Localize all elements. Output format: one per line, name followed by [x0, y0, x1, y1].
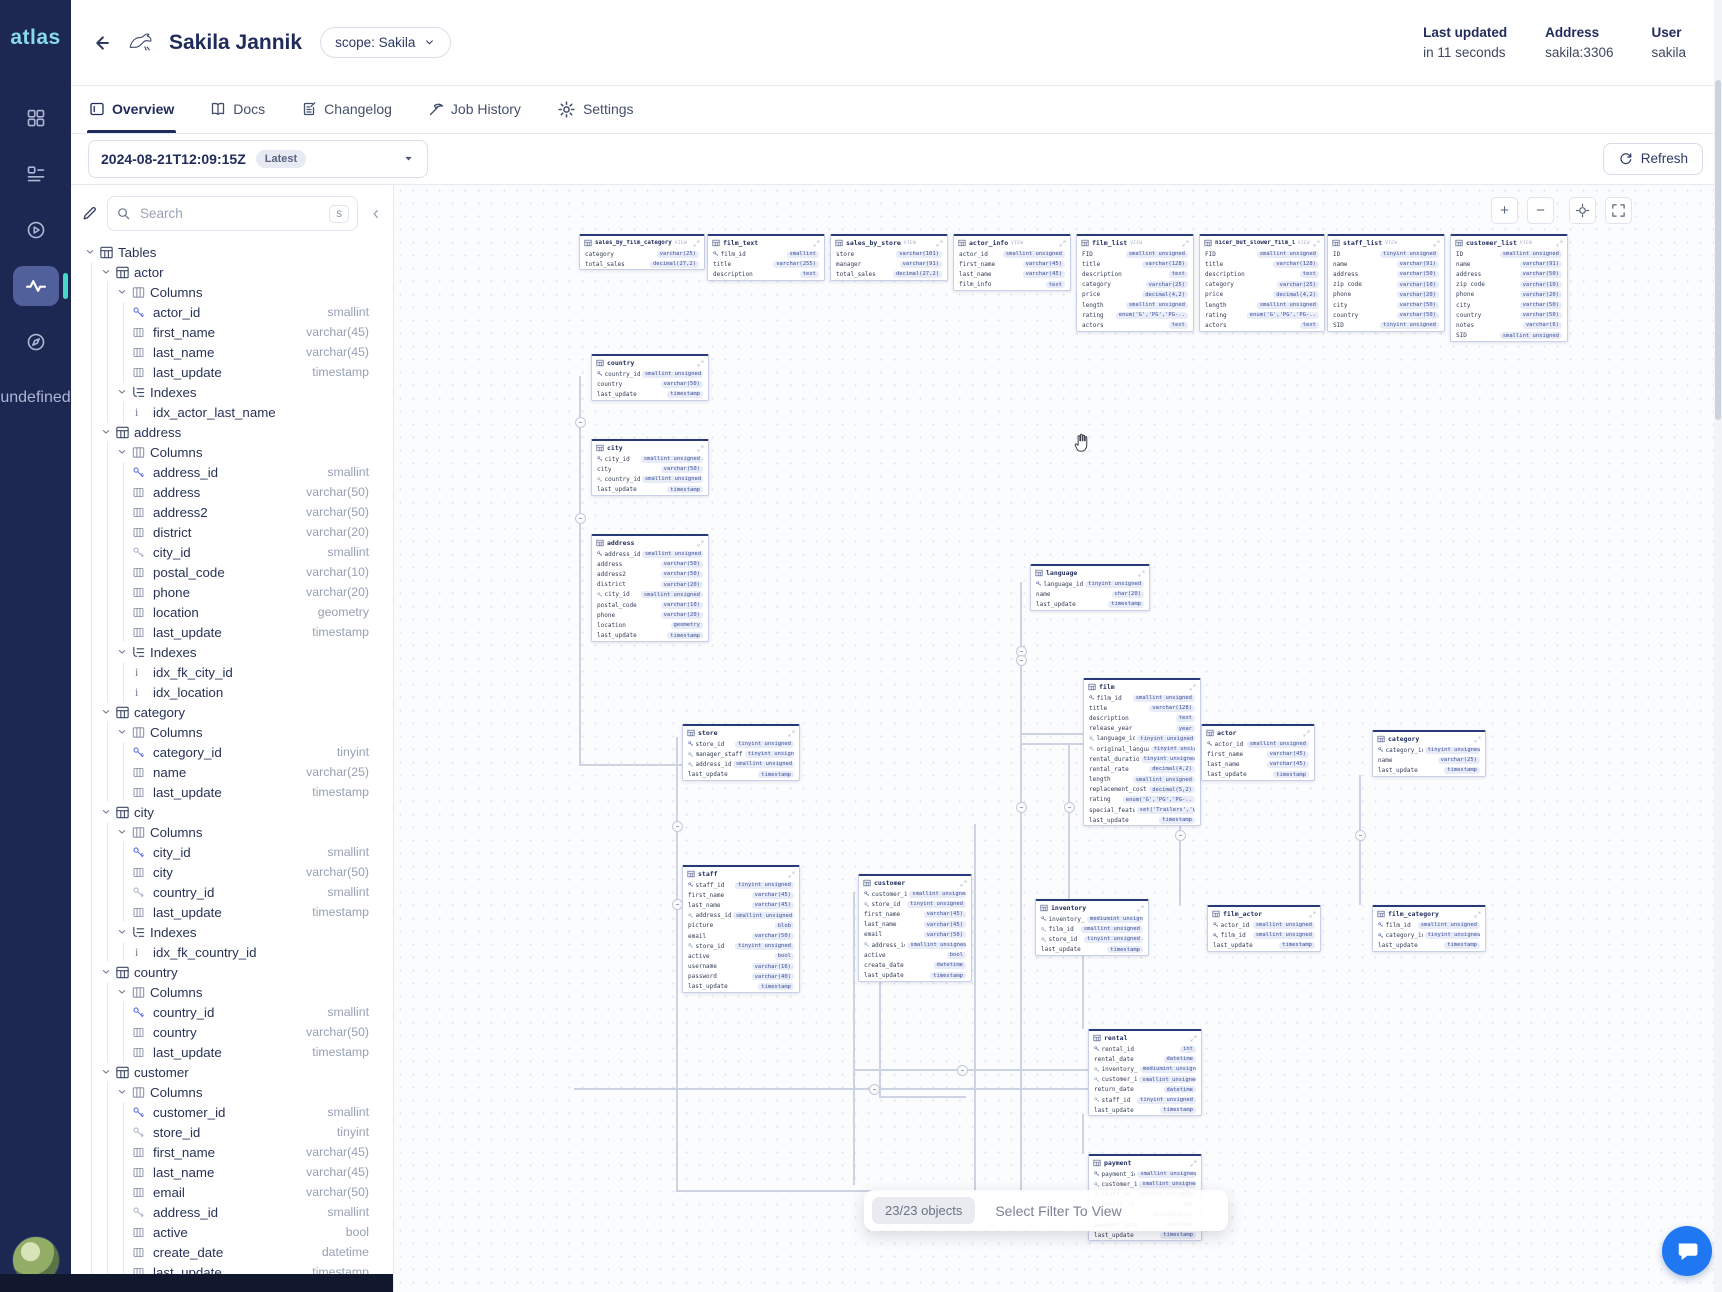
column-type-pill: text	[1300, 271, 1319, 278]
tree-row-Columns[interactable]: Columns	[71, 442, 393, 462]
tree-row-address_id[interactable]: address_idsmallint	[71, 462, 393, 482]
columns-icon	[131, 1085, 146, 1100]
active-accent-bar	[63, 273, 68, 299]
foreign-key-icon	[1094, 1097, 1100, 1103]
tree-row-city[interactable]: city	[71, 802, 393, 822]
stat-last-updated: Last updated in 11 seconds	[1423, 25, 1507, 60]
table-icon	[1040, 904, 1048, 912]
search-input[interactable]	[138, 205, 322, 222]
table-icon	[687, 870, 695, 878]
column-type-pill: text	[1169, 322, 1188, 329]
table-icon	[1212, 910, 1220, 918]
column-type-pill: smallint unsigned	[907, 942, 966, 949]
tree-row-Columns[interactable]: Columns	[71, 982, 393, 1002]
tree-row-first_name[interactable]: first_namevarchar(45)	[71, 1142, 393, 1162]
diagram-table-film_list[interactable]: film_listVIEWFIDsmallint unsignedtitleva…	[1076, 234, 1194, 332]
column-row: phonevarchar(20)	[592, 610, 708, 620]
expand-icon[interactable]	[697, 360, 704, 367]
page-scrollbar[interactable]	[1714, 0, 1722, 1292]
column-icon	[132, 506, 145, 519]
column-type-pill: smallint unsigned	[1247, 741, 1309, 748]
tab-overview[interactable]: Overview	[89, 85, 174, 133]
column-type-pill: varchar(128)	[1142, 261, 1188, 268]
tree-row-actor[interactable]: actor	[71, 262, 393, 282]
primary-key-icon	[1213, 933, 1219, 939]
collapse-node[interactable]	[575, 417, 586, 428]
tab-bar: OverviewDocsChangelogJob HistorySettings	[71, 85, 1722, 134]
diagram-table-category[interactable]: categorycategory_idtinyint unsignednamev…	[1372, 730, 1486, 777]
column-row: descriptiontext	[1084, 713, 1200, 723]
expand-icon[interactable]	[1189, 684, 1196, 691]
tree-row-Tables[interactable]: Tables	[71, 242, 393, 262]
column-row: last_namevarchar(45)	[859, 920, 971, 930]
column-row: actorstext	[1200, 320, 1324, 330]
column-type-pill: varchar(50)	[924, 931, 966, 938]
expand-icon[interactable]	[697, 540, 704, 547]
chevron-down-icon[interactable]	[100, 266, 112, 278]
diagram-table-city[interactable]: citycity_idsmallint unsignedcityvarchar(…	[591, 439, 709, 496]
nav-item-runs-icon[interactable]	[13, 210, 59, 250]
column-row: original_language_idtinyint unsigned	[1084, 744, 1200, 754]
column-row: FIDsmallint unsigned	[1200, 249, 1324, 259]
diagram-table-nicer_but_slower_film_list[interactable]: nicer_but_slower_film_listVIEWFIDsmallin…	[1199, 234, 1325, 332]
column-type-pill: bool	[947, 952, 966, 959]
tree-row-city_id[interactable]: city_idsmallint	[71, 542, 393, 562]
relation-line	[1082, 1114, 1084, 1154]
chat-icon	[1675, 1239, 1699, 1263]
diagram-table-staff[interactable]: staffstaff_idtinyint unsignedfirst_namev…	[682, 865, 800, 993]
column-row: IDsmallint unsigned	[1451, 249, 1567, 259]
column-type-pill: tinyint unsigned	[1380, 322, 1439, 329]
column-row: special_featuresset('Trailers','Co..	[1084, 805, 1200, 815]
nav-item-explore-icon[interactable]	[13, 322, 59, 362]
tree-row-country[interactable]: countryvarchar(50)	[71, 1022, 393, 1042]
column-type-pill: text	[1169, 271, 1188, 278]
expand-icon[interactable]	[1138, 570, 1145, 577]
table-icon	[115, 1065, 130, 1080]
stat-user: User sakila	[1651, 25, 1686, 60]
column-row: inventory_idmediumint unsigned	[1036, 914, 1148, 924]
indexes-icon	[131, 385, 146, 400]
tree-row-phone[interactable]: phonevarchar(20)	[71, 582, 393, 602]
column-row: last_updatetimestamp	[1208, 940, 1320, 950]
tree-row-last_name[interactable]: last_namevarchar(45)	[71, 342, 393, 362]
view-tag: VIEW	[1011, 241, 1023, 246]
column-row: SIDsmallint unsigned	[1451, 331, 1567, 341]
collapse-node[interactable]	[575, 513, 586, 524]
column-row: address_idsmallint unsigned	[859, 940, 971, 950]
key-icon	[132, 466, 145, 479]
expand-icon[interactable]	[788, 871, 795, 878]
column-type: varchar(45)	[306, 345, 369, 359]
column-row: last_updatetimestamp	[592, 485, 708, 495]
index-icon: i	[135, 945, 138, 960]
chevron-down-icon[interactable]	[116, 826, 128, 838]
expand-icon[interactable]	[693, 240, 700, 247]
diagram-table-store[interactable]: storestore_idtinyint unsignedmanager_sta…	[682, 724, 800, 781]
tab-docs[interactable]: Docs	[210, 85, 265, 133]
gear-icon	[557, 100, 576, 119]
column-type-pill: blob	[775, 922, 794, 929]
tree-row-Columns[interactable]: Columns	[71, 282, 393, 302]
table-icon	[712, 239, 720, 247]
diagram-table-inventory[interactable]: inventoryinventory_idmediumint unsignedf…	[1035, 899, 1149, 956]
table-icon	[1035, 569, 1043, 577]
collapse-node[interactable]	[1355, 830, 1366, 841]
relation-line	[974, 824, 976, 1190]
tree-row-address[interactable]: addressvarchar(50)	[71, 482, 393, 502]
table-icon	[1204, 239, 1212, 247]
column-type-pill: smallint unsigned	[909, 891, 966, 898]
tree-row-country[interactable]: country	[71, 962, 393, 982]
column-row: country_idsmallint unsigned	[592, 369, 708, 379]
column-row: actor_idsmallint unsigned	[1208, 920, 1320, 930]
expand-icon[interactable]	[1556, 240, 1563, 247]
diagram-table-actor_info[interactable]: actor_infoVIEWactor_idsmallint unsignedf…	[953, 234, 1071, 291]
foreign-key-icon	[864, 942, 870, 948]
column-type: varchar(50)	[306, 505, 369, 519]
column-type-pill: varchar(50)	[1520, 302, 1562, 309]
expand-icon[interactable]	[1190, 1160, 1197, 1167]
collapse-panel-icon[interactable]	[367, 205, 385, 223]
diagram-table-film_actor[interactable]: film_actoractor_idsmallint unsignedfilm_…	[1207, 905, 1321, 952]
expand-icon[interactable]	[936, 240, 943, 247]
tree-row-last_update[interactable]: last_updatetimestamp	[71, 362, 393, 382]
key-icon	[132, 746, 145, 759]
tree-row-city[interactable]: cityvarchar(50)	[71, 862, 393, 882]
collapse-node[interactable]	[1175, 830, 1186, 841]
nav-item-tasks-icon[interactable]	[13, 154, 59, 194]
tree-row-actor_id[interactable]: actor_idsmallint	[71, 302, 393, 322]
column-type: smallint	[327, 1005, 369, 1019]
chevron-down-icon[interactable]	[116, 1086, 128, 1098]
column-type-pill: tinyint unsigned	[1084, 936, 1143, 943]
chevron-down-icon[interactable]	[100, 426, 112, 438]
diagram-table-country[interactable]: countrycountry_idsmallint unsignedcountr…	[591, 354, 709, 401]
chevron-down-icon[interactable]	[100, 706, 112, 718]
expand-icon[interactable]	[1433, 240, 1440, 247]
collapse-node[interactable]	[1016, 655, 1027, 666]
tree-row-active[interactable]: activebool	[71, 1222, 393, 1242]
left-nav-rail: atlas undefined	[0, 0, 71, 1292]
view-tag: VIEW	[904, 241, 916, 246]
column-icon	[132, 586, 145, 599]
column-row: emailvarchar(50)	[859, 930, 971, 940]
column-row: ratingenum('G','PG','PG-..	[1084, 795, 1200, 805]
tree-row-Indexes[interactable]: Indexes	[71, 382, 393, 402]
chevron-down-icon[interactable]	[116, 726, 128, 738]
table-icon	[115, 705, 130, 720]
chevron-down-icon[interactable]	[100, 1066, 112, 1078]
nav-item-dashboard-icon[interactable]	[13, 98, 59, 138]
tree-row-first_name[interactable]: first_namevarchar(45)	[71, 322, 393, 342]
column-row: cityvarchar(50)	[1328, 300, 1444, 310]
chevron-down-icon[interactable]	[116, 286, 128, 298]
tree-row-Indexes[interactable]: Indexes	[71, 642, 393, 662]
tree-row-store_id[interactable]: store_idtinyint	[71, 1122, 393, 1142]
refresh-button[interactable]: Refresh	[1603, 143, 1703, 175]
back-button[interactable]	[91, 33, 111, 53]
foreign-key-icon	[597, 592, 603, 598]
diagram-table-customer_list[interactable]: customer_listVIEWIDsmallint unsignedname…	[1450, 234, 1568, 342]
column-type-pill: datetime	[934, 962, 967, 969]
column-icon	[132, 1026, 145, 1039]
chevron-down-icon[interactable]	[116, 926, 128, 938]
tree-row-category_id[interactable]: category_idtinyint	[71, 742, 393, 762]
collapse-node[interactable]	[672, 899, 683, 910]
relation-line	[579, 376, 581, 766]
column-icon	[132, 766, 145, 779]
column-type-pill: datetime	[1164, 1086, 1197, 1093]
edit-pencil-icon[interactable]	[81, 205, 98, 222]
tree-row-Columns[interactable]: Columns	[71, 1082, 393, 1102]
tree-row-Columns[interactable]: Columns	[71, 722, 393, 742]
column-type-pill: smallint unsigned	[1500, 251, 1562, 258]
column-type-pill: decimal(27,2)	[893, 271, 942, 278]
foreign-key-icon	[1094, 1077, 1100, 1083]
table-icon	[596, 539, 604, 547]
chevron-down-icon[interactable]	[116, 446, 128, 458]
column-type-pill: varchar(128)	[1273, 261, 1319, 268]
tab-job-history[interactable]: Job History	[428, 85, 521, 133]
foreign-key-icon	[688, 913, 694, 919]
tree-row-create_date[interactable]: create_datedatetime	[71, 1242, 393, 1262]
collapse-node[interactable]	[672, 821, 683, 832]
column-type-pill: smallint unsigned	[1133, 776, 1195, 783]
collapse-node[interactable]	[1064, 802, 1075, 813]
tree-row-idx_actor_last_name[interactable]: iidx_actor_last_name	[71, 402, 393, 422]
chevron-down-icon[interactable]	[116, 646, 128, 658]
relation-line	[1068, 744, 1070, 899]
column-type-pill: varchar(25)	[1146, 281, 1188, 288]
tree-row-category[interactable]: category	[71, 702, 393, 722]
table-icon	[99, 245, 114, 260]
column-row: ratingenum('G','PG','PG-..	[1200, 310, 1324, 320]
column-type-pill: timestamp	[1444, 942, 1480, 949]
column-row: customer_idsmallint unsigned	[1089, 1179, 1201, 1189]
overview-icon	[89, 101, 105, 117]
erd-canvas[interactable]: + − sales_by_film_categoryVIEWcategoryva…	[394, 184, 1714, 1292]
column-type: geometry	[318, 605, 369, 619]
tree-row-last_name[interactable]: last_namevarchar(45)	[71, 1162, 393, 1182]
diagram-table-actor[interactable]: actoractor_idsmallint unsignedfirst_name…	[1201, 724, 1315, 781]
zoom-out-button[interactable]: −	[1527, 197, 1554, 224]
tab-changelog[interactable]: Changelog	[301, 85, 392, 133]
column-row: titlevarchar(128)	[1077, 259, 1193, 269]
collapse-node[interactable]	[1016, 802, 1027, 813]
scope-label: scope: Sakila	[335, 35, 415, 50]
column-icon	[132, 486, 145, 499]
primary-key-icon	[597, 551, 603, 557]
column-row: address2varchar(50)	[592, 569, 708, 579]
diagram-table-staff_list[interactable]: staff_listVIEWIDtinyint unsignednamevarc…	[1327, 234, 1445, 332]
expand-icon[interactable]	[1182, 240, 1189, 247]
tree-row-customer[interactable]: customer	[71, 1062, 393, 1082]
tree-row-address_id[interactable]: address_idsmallint	[71, 1202, 393, 1222]
diagram-table-rental[interactable]: rentalrental_idintrental_datedatetimeinv…	[1088, 1029, 1202, 1116]
column-type: timestamp	[312, 365, 369, 379]
tree-row-name[interactable]: namevarchar(25)	[71, 762, 393, 782]
tree-row-postal_code[interactable]: postal_codevarchar(10)	[71, 562, 393, 582]
column-type: smallint	[327, 845, 369, 859]
mysql-dolphin-icon	[127, 30, 153, 56]
diagram-table-language[interactable]: languagelanguage_idtinyint unsignednamec…	[1030, 564, 1150, 611]
chevron-down-icon[interactable]	[100, 966, 112, 978]
tree-row-address2[interactable]: address2varchar(50)	[71, 502, 393, 522]
snapshot-dropdown[interactable]: 2024-08-21T12:09:15Z Latest	[88, 140, 428, 178]
column-row: managervarchar(91)	[831, 259, 947, 269]
tree-row-city_id[interactable]: city_idsmallint	[71, 842, 393, 862]
chevron-down-icon[interactable]	[100, 806, 112, 818]
column-type-pill: varchar(20)	[1520, 291, 1562, 298]
foreign-key-icon	[1089, 746, 1095, 752]
expand-icon[interactable]	[697, 445, 704, 452]
chevron-down-icon[interactable]	[116, 386, 128, 398]
column-type-pill: smallint	[787, 251, 820, 258]
fit-to-screen-button[interactable]	[1605, 197, 1632, 224]
expand-icon[interactable]	[788, 730, 795, 737]
tree-row-Columns[interactable]: Columns	[71, 822, 393, 842]
tree-row-country_id[interactable]: country_idsmallint	[71, 882, 393, 902]
column-type-pill: text	[1046, 281, 1065, 288]
relation-line	[853, 1069, 1088, 1071]
column-icon	[132, 906, 145, 919]
panel-horizontal-scrollbar[interactable]	[0, 1274, 393, 1292]
expand-icon[interactable]	[1313, 240, 1320, 247]
column-type-pill: timestamp	[758, 983, 794, 990]
expand-icon[interactable]	[1137, 905, 1144, 912]
center-view-button[interactable]	[1569, 197, 1596, 224]
tree-row-location[interactable]: locationgeometry	[71, 602, 393, 622]
snapshot-toolbar: 2024-08-21T12:09:15Z Latest Refresh	[71, 133, 1722, 185]
table-icon	[596, 444, 604, 452]
column-type-pill: smallint unsigned	[733, 761, 794, 768]
column-type: smallint	[327, 885, 369, 899]
tree-row-customer_id[interactable]: customer_idsmallint	[71, 1102, 393, 1122]
tree-row-last_update[interactable]: last_updatetimestamp	[71, 1042, 393, 1062]
columns-icon	[131, 825, 146, 840]
nav-item-monitoring-icon[interactable]	[13, 266, 59, 306]
column-type-pill: tinyint unsigned	[1380, 251, 1439, 258]
chat-launcher-button[interactable]	[1662, 1226, 1712, 1276]
jobhistory-icon	[428, 101, 444, 117]
column-type-pill: tinyint unsigned	[1141, 756, 1195, 763]
column-type: varchar(10)	[306, 565, 369, 579]
schema-tree: TablesactorColumnsactor_idsmallintfirst_…	[71, 242, 393, 1292]
relation-line	[1020, 582, 1022, 1190]
expand-icon[interactable]	[1303, 730, 1310, 737]
tree-row-last_update[interactable]: last_updatetimestamp	[71, 902, 393, 922]
expand-icon[interactable]	[1474, 736, 1481, 743]
column-icon	[132, 1186, 145, 1199]
diagram-table-sales_by_film_category[interactable]: sales_by_film_categoryVIEWcategoryvarcha…	[579, 234, 705, 270]
tree-row-idx_fk_city_id[interactable]: iidx_fk_city_id	[71, 662, 393, 682]
diagram-table-film_category[interactable]: film_categoryfilm_idsmallint unsignedcat…	[1372, 905, 1486, 952]
tree-row-address[interactable]: address	[71, 422, 393, 442]
column-type-pill: varchar(50)	[1397, 302, 1439, 309]
column-row: passwordvarchar(40)	[683, 972, 799, 982]
tree-row-email[interactable]: emailvarchar(50)	[71, 1182, 393, 1202]
diagram-table-film_text[interactable]: film_textfilm_idsmallinttitlevarchar(255…	[707, 234, 825, 281]
tree-row-idx_location[interactable]: iidx_location	[71, 682, 393, 702]
primary-key-icon	[597, 371, 603, 377]
table-icon	[1093, 1159, 1101, 1167]
tree-row-Indexes[interactable]: Indexes	[71, 922, 393, 942]
column-type-pill: smallint unsigned	[733, 912, 794, 919]
column-type-pill: varchar(45)	[924, 921, 966, 928]
foreign-key-icon	[132, 546, 145, 559]
column-icon	[132, 326, 145, 339]
expand-icon[interactable]	[813, 240, 820, 247]
tree-row-last_update[interactable]: last_updatetimestamp	[71, 782, 393, 802]
foreign-key-icon	[132, 886, 145, 899]
chevron-down-icon[interactable]	[116, 986, 128, 998]
column-row: store_idtinyint unsigned	[1036, 934, 1148, 944]
nav-item-settings-icon[interactable]: undefined	[13, 378, 59, 418]
column-row: namechar(20)	[1031, 589, 1149, 599]
foreign-key-icon	[1094, 1182, 1100, 1188]
diagram-table-address[interactable]: addressaddress_idsmallint unsignedaddres…	[591, 534, 709, 642]
expand-icon[interactable]	[1474, 911, 1481, 918]
chevron-down-icon[interactable]	[84, 246, 96, 258]
column-row: inventory_idmediumint unsigned	[1089, 1064, 1201, 1074]
diagram-table-customer[interactable]: customercustomer_idsmallint unsignedstor…	[858, 874, 972, 982]
column-type-pill: varchar(50)	[1397, 271, 1439, 278]
collapse-node[interactable]	[957, 1065, 968, 1076]
column-row: pricedecimal(4,2)	[1077, 290, 1193, 300]
primary-key-icon	[1089, 695, 1095, 701]
expand-icon[interactable]	[1059, 240, 1066, 247]
column-type: smallint	[327, 465, 369, 479]
table-icon	[1377, 735, 1385, 743]
tree-row-district[interactable]: districtvarchar(20)	[71, 522, 393, 542]
index-icon: i	[135, 405, 138, 420]
table-icon	[596, 359, 604, 367]
tree-row-country_id[interactable]: country_idsmallint	[71, 1002, 393, 1022]
table-icon	[115, 425, 130, 440]
diagram-table-film[interactable]: filmfilm_idsmallint unsignedtitlevarchar…	[1083, 678, 1201, 826]
column-type: bool	[346, 1225, 369, 1239]
key-icon	[132, 1006, 145, 1019]
search-box[interactable]: s	[107, 196, 358, 231]
latest-badge: Latest	[256, 150, 306, 168]
column-type-pill: enum('G','PG','PG-..	[1123, 796, 1195, 803]
primary-key-icon	[713, 251, 719, 257]
zoom-in-button[interactable]: +	[1491, 197, 1518, 224]
column-type-pill: timestamp	[1160, 1107, 1196, 1114]
scope-selector[interactable]: scope: Sakila	[320, 27, 451, 58]
tab-settings[interactable]: Settings	[557, 85, 634, 133]
expand-icon[interactable]	[1309, 911, 1316, 918]
column-type-pill: decimal(4,2)	[1273, 291, 1319, 298]
column-icon	[132, 786, 145, 799]
expand-icon[interactable]	[1190, 1035, 1197, 1042]
collapse-node[interactable]	[869, 1084, 880, 1095]
column-type-pill: timestamp	[1107, 946, 1143, 953]
column-row: countryvarchar(50)	[592, 379, 708, 389]
column-row: addressvarchar(50)	[1451, 269, 1567, 279]
diagram-table-sales_by_store[interactable]: sales_by_storeVIEWstorevarchar(101)manag…	[830, 234, 948, 281]
tree-row-idx_fk_country_id[interactable]: iidx_fk_country_id	[71, 942, 393, 962]
column-type-pill: tinyint unsigned	[1085, 581, 1144, 588]
tree-row-last_update[interactable]: last_updatetimestamp	[71, 622, 393, 642]
expand-icon[interactable]	[960, 880, 967, 887]
column-row: country_idsmallint unsigned	[592, 474, 708, 484]
select-filter-button[interactable]: Select Filter To View	[995, 1203, 1121, 1219]
column-type-pill: varchar(128)	[1149, 705, 1195, 712]
key-icon	[132, 306, 145, 319]
column-row: create_datedatetime	[859, 960, 971, 970]
